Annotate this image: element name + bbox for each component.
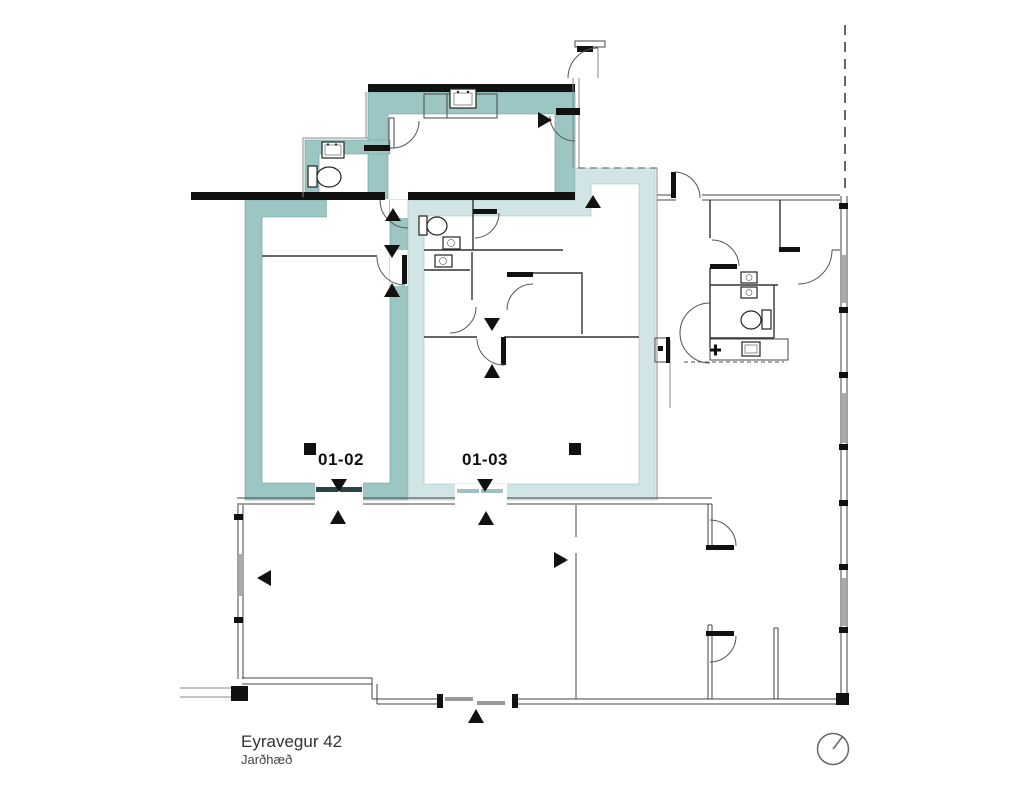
toilet-icon [762,310,771,329]
direction-triangle-icon [484,364,500,378]
direction-triangle-icon [330,510,346,524]
plan-address: Eyravegur 42 [241,732,342,752]
unit-label-01-02: 01-02 [311,450,371,470]
direction-triangle-icon [538,112,552,128]
sink-icon [435,255,452,267]
direction-triangle-icon [478,511,494,525]
direction-triangle-icon [468,709,484,723]
toilet-icon [308,166,317,187]
unit-0103-band [408,168,655,500]
stove-icon [710,345,721,356]
unit-highlight-01-03[interactable] [408,168,655,503]
unit-entry-marker [569,443,581,455]
sink-icon [443,237,460,249]
sink-icon [741,272,757,283]
door-panel-0102 [316,487,338,492]
bottom-section [180,487,836,708]
floor-plan-canvas: 01-02 01-03 Eyravegur 42 Jarðhæð [0,0,1025,801]
window-wall-right [836,196,849,705]
right-wing [655,168,840,500]
direction-triangle-icon [554,552,568,568]
plan-floor-label: Jarðhæð [241,752,292,767]
direction-triangle-icon [484,318,500,331]
direction-triangle-icon [257,570,271,586]
door-panel-0103 [457,489,479,493]
door-panel-0102 [340,487,362,492]
toilet-icon [419,216,427,235]
unit-label-01-03: 01-03 [455,450,515,470]
north-indicator-icon [818,734,849,765]
sink-icon [741,287,757,298]
floor-plan [0,0,1025,801]
